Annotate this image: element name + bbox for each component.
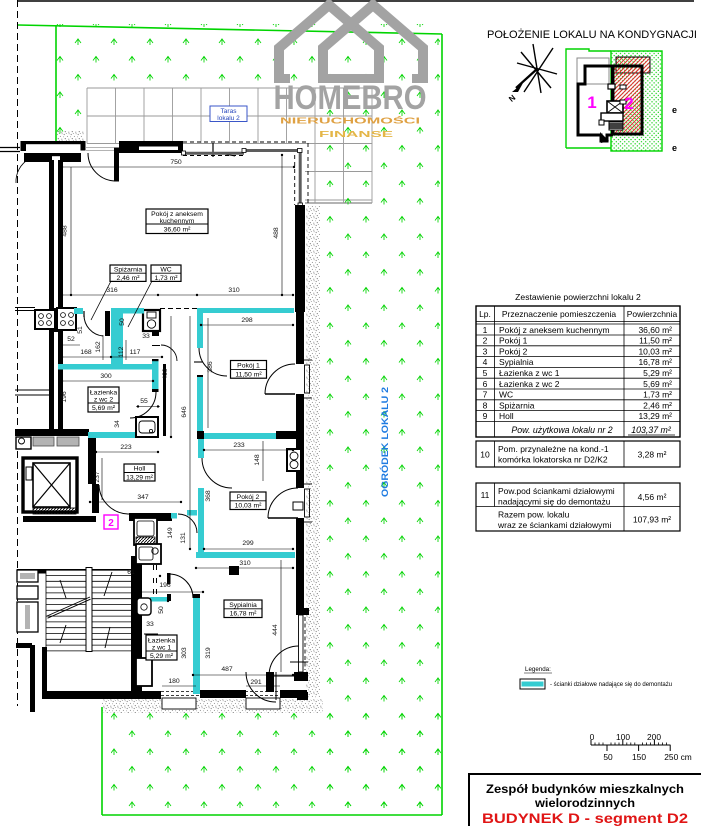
svg-text:lokalu 2: lokalu 2 (217, 115, 240, 122)
svg-text:2: 2 (483, 336, 488, 346)
svg-text:55: 55 (140, 398, 148, 405)
svg-text:5,69 m²: 5,69 m² (643, 379, 672, 389)
svg-text:POŁOŻENIE LOKALU NA KONDYGNACJ: POŁOŻENIE LOKALU NA KONDYGNACJI (487, 28, 697, 41)
svg-text:2,46 m²: 2,46 m² (116, 275, 140, 282)
svg-text:wielorodzinnych: wielorodzinnych (534, 796, 635, 810)
svg-text:kuchennym: kuchennym (160, 218, 195, 225)
svg-text:13,29 m²: 13,29 m² (126, 474, 154, 481)
svg-text:291: 291 (250, 679, 262, 686)
svg-text:149: 149 (167, 527, 174, 539)
svg-text:33: 33 (146, 621, 154, 628)
svg-text:Spiżarnia: Spiżarnia (499, 400, 535, 410)
svg-text:61: 61 (127, 569, 135, 576)
svg-text:3,28 m²: 3,28 m² (638, 450, 667, 460)
svg-text:319: 319 (205, 647, 212, 659)
svg-text:233: 233 (233, 442, 245, 449)
svg-text:Przeznaczenie pomieszczenia: Przeznaczenie pomieszczenia (502, 309, 617, 319)
svg-text:nadającymi się do demontażu: nadającymi się do demontażu (498, 497, 611, 507)
svg-text:8: 8 (483, 400, 488, 410)
svg-text:Łazienka: Łazienka (90, 390, 117, 397)
svg-text:Pokój z aneksem: Pokój z aneksem (151, 211, 203, 218)
svg-text:488: 488 (273, 227, 280, 239)
svg-text:Pokój 1: Pokój 1 (237, 362, 260, 369)
svg-text:303: 303 (181, 647, 188, 659)
svg-text:3: 3 (483, 346, 488, 356)
svg-text:5,29 m²: 5,29 m² (150, 653, 174, 660)
svg-text:11,50 m²: 11,50 m² (235, 371, 262, 378)
svg-text:Powierzchnia: Powierzchnia (627, 309, 678, 319)
svg-text:750: 750 (170, 159, 182, 166)
svg-text:2: 2 (624, 94, 633, 113)
svg-text:Pokój 1: Pokój 1 (499, 336, 528, 346)
svg-text:Pokój z aneksem kuchennym: Pokój z aneksem kuchennym (499, 325, 610, 335)
svg-text:50: 50 (119, 318, 126, 326)
svg-text:1: 1 (587, 93, 596, 112)
svg-text:444: 444 (272, 624, 279, 636)
svg-text:11: 11 (481, 490, 490, 500)
svg-text:16,78 m²: 16,78 m² (230, 611, 258, 618)
svg-text:50: 50 (603, 752, 613, 762)
svg-text:Pom. przynależne na kond.-1: Pom. przynależne na kond.-1 (498, 444, 609, 454)
svg-text:51: 51 (77, 326, 84, 334)
svg-text:z wc 1: z wc 1 (152, 645, 171, 652)
svg-text:e: e (672, 105, 677, 115)
svg-text:HOMEBRO: HOMEBRO (274, 79, 427, 117)
svg-text:162: 162 (95, 341, 102, 353)
svg-text:10,03 m²: 10,03 m² (638, 346, 672, 356)
svg-text:168: 168 (80, 349, 92, 356)
svg-text:6: 6 (483, 379, 488, 389)
svg-text:OGRÓDEK LOKALU 2: OGRÓDEK LOKALU 2 (379, 387, 391, 497)
svg-text:223: 223 (120, 444, 132, 451)
svg-text:180: 180 (168, 678, 180, 685)
svg-text:36,60 m²: 36,60 m² (164, 227, 192, 234)
svg-text:Zestawienie powierzchni lokalu: Zestawienie powierzchni lokalu 2 (515, 292, 641, 302)
svg-text:NIERUCHOMOŚCI: NIERUCHOMOŚCI (280, 115, 420, 126)
svg-text:16,78 m²: 16,78 m² (638, 357, 672, 367)
svg-text:5,29 m²: 5,29 m² (643, 368, 672, 378)
svg-text:WC: WC (160, 267, 171, 274)
svg-text:Pokój 2: Pokój 2 (499, 346, 528, 356)
svg-text:196: 196 (61, 391, 68, 403)
svg-text:112: 112 (118, 346, 125, 357)
svg-text:34: 34 (114, 420, 121, 428)
svg-text:13,29 m²: 13,29 m² (638, 411, 672, 421)
svg-text:0: 0 (590, 732, 595, 742)
svg-text:Spiżarnia: Spiżarnia (114, 267, 143, 274)
svg-text:409: 409 (162, 368, 169, 380)
svg-text:Łazienka: Łazienka (148, 638, 175, 645)
svg-text:298: 298 (241, 317, 253, 324)
svg-text:Legenda:: Legenda: (525, 666, 551, 673)
svg-text:WC: WC (499, 390, 513, 400)
svg-text:310: 310 (239, 560, 251, 567)
svg-text:z wc 2: z wc 2 (94, 397, 113, 404)
svg-text:646: 646 (181, 406, 188, 418)
svg-text:2,46 m²: 2,46 m² (643, 400, 672, 410)
svg-text:Pow. użytkowa lokalu nr 2: Pow. użytkowa lokalu nr 2 (511, 425, 612, 435)
svg-text:487: 487 (221, 666, 233, 673)
svg-text:9: 9 (483, 411, 488, 421)
svg-text:150: 150 (632, 752, 646, 762)
svg-text:300: 300 (100, 373, 112, 380)
svg-text:e: e (672, 143, 677, 153)
svg-text:Pow.pod ściankami działowymi: Pow.pod ściankami działowymi (498, 486, 615, 496)
svg-text:386: 386 (207, 361, 214, 373)
svg-text:Holl: Holl (134, 466, 146, 473)
svg-text:wraz ze ściankami działowymi: wraz ze ściankami działowymi (497, 520, 611, 530)
svg-text:Pokój 2: Pokój 2 (237, 494, 260, 501)
svg-text:310: 310 (228, 287, 240, 294)
svg-text:Razem pow. lokalu: Razem pow. lokalu (498, 510, 570, 520)
svg-text:Holl: Holl (499, 411, 514, 421)
svg-text:1: 1 (483, 325, 488, 335)
svg-text:237: 237 (94, 471, 101, 483)
svg-text:4: 4 (483, 357, 488, 367)
svg-text:FINANSE: FINANSE (319, 129, 393, 139)
svg-text:316: 316 (106, 287, 118, 294)
svg-text:52: 52 (67, 336, 75, 343)
svg-text:Łazienka z wc 1: Łazienka z wc 1 (499, 368, 560, 378)
svg-text:10,03 m²: 10,03 m² (235, 503, 263, 510)
svg-text:131: 131 (180, 532, 187, 544)
svg-text:11,50 m²: 11,50 m² (639, 336, 672, 346)
svg-text:Zespół budynków mieszkalnych: Zespół budynków mieszkalnych (486, 782, 684, 796)
svg-text:50: 50 (158, 606, 165, 614)
svg-text:Lp.: Lp. (479, 309, 491, 319)
svg-text:Łazienka z wc 2: Łazienka z wc 2 (499, 379, 560, 389)
svg-text:Sypialnia: Sypialnia (499, 357, 534, 367)
svg-text:117: 117 (130, 349, 141, 356)
svg-text:103,37 m²: 103,37 m² (631, 425, 672, 435)
svg-text:299: 299 (242, 540, 254, 547)
svg-text:1,73 m²: 1,73 m² (643, 390, 672, 400)
svg-text:33: 33 (142, 333, 150, 340)
svg-text:komórka lokatorska nr D2/K2: komórka lokatorska nr D2/K2 (498, 455, 608, 465)
svg-text:148: 148 (254, 454, 261, 466)
svg-text:5,69 m²: 5,69 m² (92, 405, 116, 412)
svg-text:BUDYNEK D - segment D2: BUDYNEK D - segment D2 (482, 811, 688, 826)
svg-text:488: 488 (62, 225, 69, 237)
svg-text:Taras: Taras (221, 108, 238, 115)
svg-text:- ścianki działowe nadające si: - ścianki działowe nadające się do demon… (550, 682, 672, 688)
svg-text:10: 10 (480, 450, 490, 460)
svg-text:250 cm: 250 cm (664, 752, 691, 762)
svg-text:1,73 m²: 1,73 m² (154, 275, 178, 282)
svg-text:4,56 m²: 4,56 m² (638, 492, 667, 502)
svg-text:2: 2 (108, 518, 114, 529)
svg-text:107,93 m²: 107,93 m² (633, 515, 671, 525)
svg-text:5: 5 (483, 368, 488, 378)
svg-text:196: 196 (159, 582, 171, 589)
svg-text:368: 368 (205, 490, 212, 502)
svg-text:Sypialnia: Sypialnia (229, 602, 257, 609)
svg-text:7: 7 (483, 390, 488, 400)
svg-text:36,60 m²: 36,60 m² (638, 325, 672, 335)
svg-text:347: 347 (137, 494, 149, 501)
